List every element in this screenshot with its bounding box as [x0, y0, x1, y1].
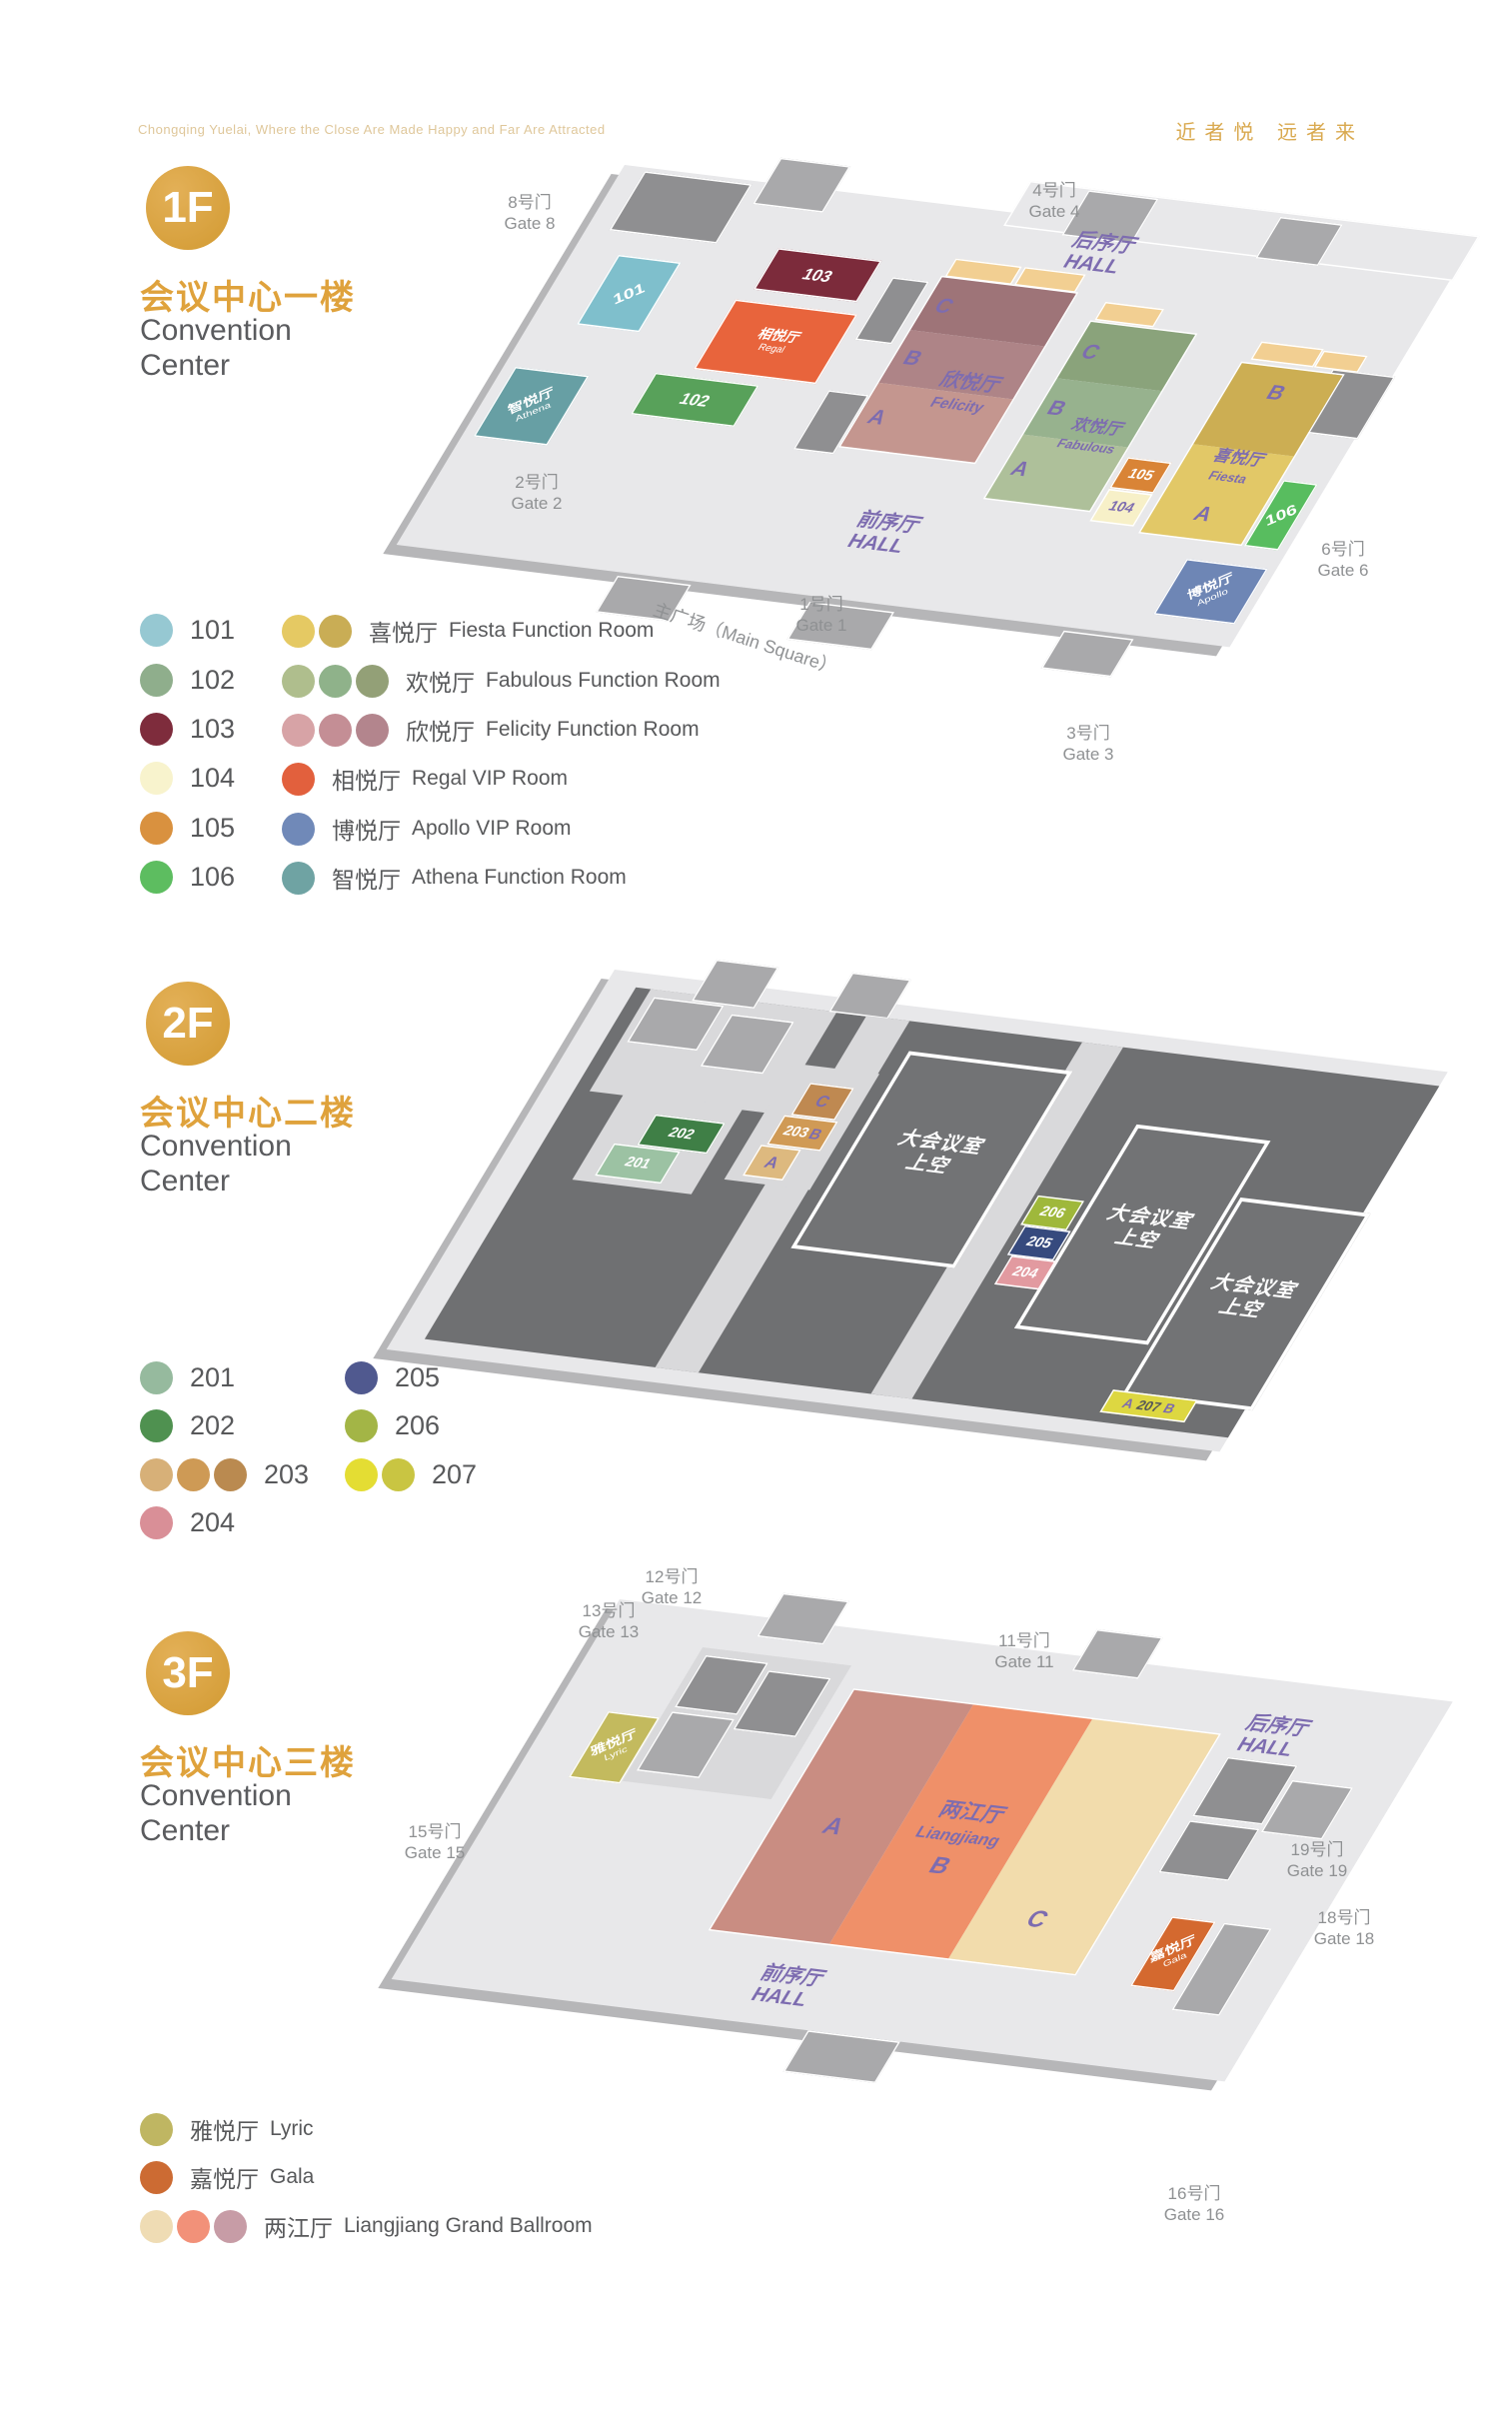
floor-title-zh-3f: 会议中心三楼 [140, 1735, 356, 1784]
legend-dot [140, 1458, 173, 1491]
legend-num: 202 [190, 1410, 235, 1441]
gate-11-label: 11号门 Gate 11 [994, 1631, 1053, 1672]
gate-3-label: 3号门 Gate 3 [1062, 724, 1113, 765]
legend-zh: 智悦厅 [332, 861, 401, 895]
legend-dot [282, 862, 315, 895]
legend-row-gala: 嘉悦厅 Gala [140, 2160, 314, 2194]
floor-badge-1f: 1F [146, 166, 230, 250]
gate-6-label: 6号门 Gate 6 [1317, 540, 1368, 581]
legend-row-204: 204 [140, 1506, 235, 1539]
gate-4-label: 4号门 Gate 4 [1028, 181, 1079, 222]
legend-dot [282, 665, 315, 698]
floor-badge-2f: 2F [146, 982, 230, 1066]
legend-dot [356, 665, 389, 698]
entrance-block [1041, 631, 1134, 678]
legend-dot [282, 813, 315, 846]
legend-dot [140, 614, 173, 647]
legend-dot [177, 1458, 210, 1491]
legend-dot [356, 714, 389, 747]
iso-plane-1f: 后序厅 HALL 前序厅 HALL 101 103 相悦厅Regal 102 智… [397, 165, 1458, 647]
legend-dot [140, 861, 173, 894]
legend-zh: 雅悦厅 [190, 2112, 259, 2146]
legend-zh: 相悦厅 [332, 762, 401, 796]
legend-num: 102 [190, 665, 235, 696]
legend-dot [345, 1361, 378, 1394]
legend-row-203: 203 [140, 1458, 309, 1491]
legend-dot [140, 812, 173, 845]
legend-dot [140, 1506, 173, 1539]
gate-8-label: 8号门 Gate 8 [504, 193, 555, 234]
legend-dot [140, 1409, 173, 1442]
legend-en: Apollo VIP Room [412, 817, 572, 841]
legend-dot [214, 1458, 247, 1491]
floor-title-en-3f: Convention Center [140, 1779, 292, 1849]
legend-num: 101 [190, 615, 235, 646]
legend-dot [140, 2161, 173, 2194]
floor-plan-1f: 后序厅 HALL 前序厅 HALL 101 103 相悦厅Regal 102 智… [410, 130, 1469, 820]
floor-title-zh-2f: 会议中心二楼 [140, 1086, 356, 1135]
legend-row-105: 105 [140, 812, 235, 845]
legend-dot [282, 714, 315, 747]
legend-dot [319, 714, 352, 747]
legend-dot [345, 1458, 378, 1491]
gate-15-label: 15号门 Gate 15 [405, 1822, 466, 1863]
legend-row-102: 102 [140, 664, 235, 697]
gate-12-label: 12号门 Gate 12 [642, 1567, 703, 1608]
legend-num: 103 [190, 714, 235, 745]
gate-18-label: 18号门 Gate 18 [1314, 1908, 1375, 1949]
legend-dot [319, 665, 352, 698]
legend-dot [140, 762, 173, 795]
legend-dot [345, 1409, 378, 1442]
legend-num: 106 [190, 862, 235, 893]
legend-row-104: 104 [140, 762, 235, 795]
legend-zh: 嘉悦厅 [190, 2160, 259, 2194]
gate-16-label: 16号门 Gate 16 [1164, 2184, 1225, 2225]
gate-1-label: 1号门 Gate 1 [795, 595, 846, 636]
legend-num: 204 [190, 1507, 235, 1538]
legend-num: 201 [190, 1362, 235, 1393]
legend-num: 105 [190, 813, 235, 844]
legend-row-lyric: 雅悦厅 Lyric [140, 2112, 314, 2146]
legend-row-202: 202 [140, 1409, 235, 1442]
floor-plan-3f: 雅悦厅Lyric A 两江厅Liangjiang B C 嘉悦厅Gala 后序厅… [400, 1559, 1469, 2329]
legend-zh: 两江厅 [264, 2209, 333, 2243]
legend-dot [140, 2210, 173, 2243]
legend-dot [140, 1361, 173, 1394]
legend-row-athena: 智悦厅 Athena Function Room [282, 861, 627, 895]
floor-title-en-1f: Convention Center [140, 314, 292, 384]
gate-2-label: 2号门 Gate 2 [511, 473, 562, 514]
legend-dot [282, 615, 315, 648]
legend-en: Lyric [270, 2117, 314, 2141]
legend-row-106: 106 [140, 861, 235, 894]
legend-dot [140, 2113, 173, 2146]
legend-dot [214, 2210, 247, 2243]
gate-13-label: 13号门 Gate 13 [579, 1601, 640, 1642]
floor-badge-3f: 3F [146, 1631, 230, 1715]
legend-dot [140, 664, 173, 697]
legend-row-101: 101 [140, 614, 235, 647]
legend-row-201: 201 [140, 1361, 235, 1394]
legend-en: Athena Function Room [412, 866, 627, 890]
floor-title-zh-1f: 会议中心一楼 [140, 270, 356, 319]
legend-row-103: 103 [140, 713, 235, 746]
legend-zh: 博悦厅 [332, 812, 401, 846]
legend-dot [177, 2210, 210, 2243]
floor-plan-2f: 大会议室 上空 大会议室 上空 大会议室 上空 201 202 C 203 B [400, 940, 1459, 1609]
legend-dot [140, 713, 173, 746]
gate-19-label: 19号门 Gate 19 [1287, 1840, 1348, 1881]
legend-en: Gala [270, 2165, 314, 2189]
legend-dot [319, 615, 352, 648]
legend-num: 104 [190, 763, 235, 794]
legend-num: 203 [264, 1459, 309, 1490]
legend-dot [282, 763, 315, 796]
iso-plane-2f: 大会议室 上空 大会议室 上空 大会议室 上空 201 202 C 203 B [387, 970, 1448, 1451]
floor-title-en-2f: Convention Center [140, 1130, 292, 1200]
floor-map-page: Chongqing Yuelai, Where the Close Are Ma… [0, 0, 1512, 2418]
